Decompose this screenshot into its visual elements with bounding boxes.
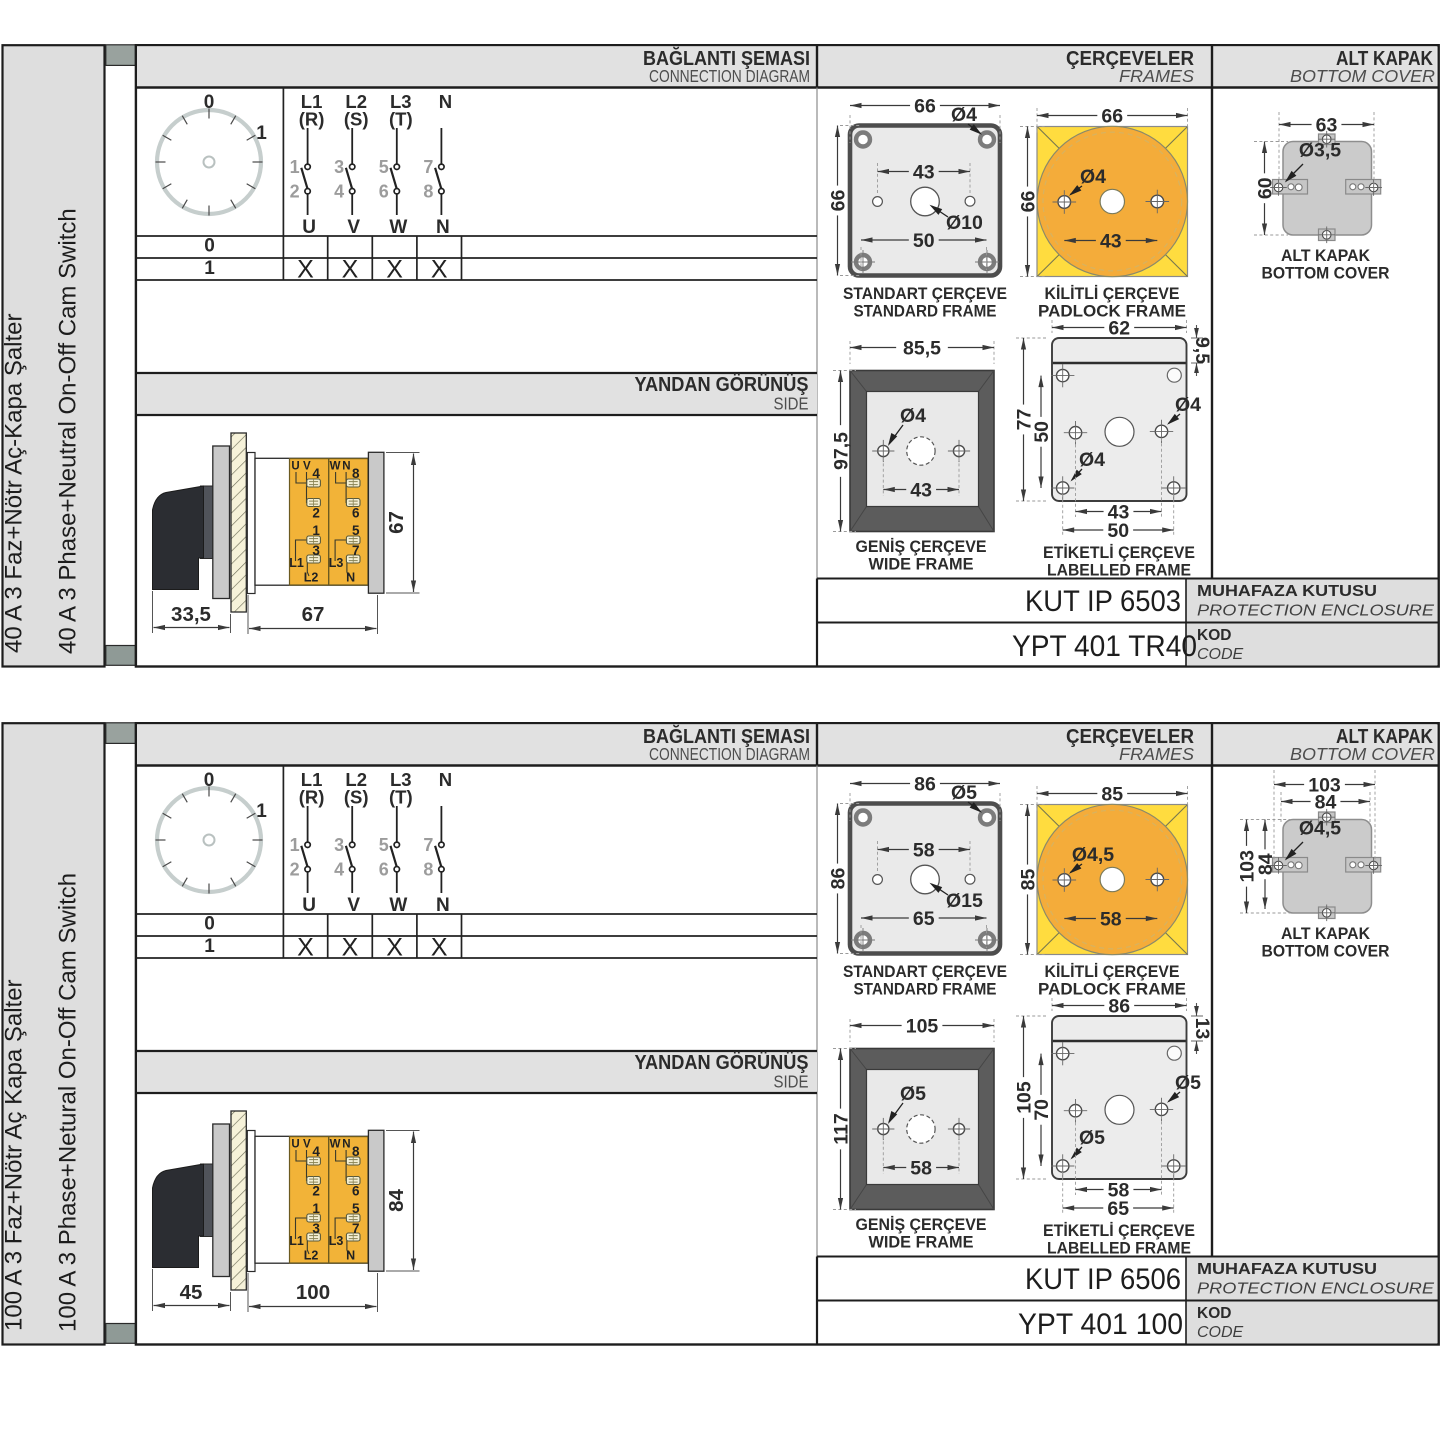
svg-text:N: N — [439, 91, 452, 112]
svg-text:ETİKETLİ ÇERÇEVE: ETİKETLİ ÇERÇEVE — [1043, 543, 1195, 562]
svg-text:N: N — [342, 461, 350, 473]
svg-text:W: W — [389, 895, 407, 916]
svg-text:86: 86 — [1108, 996, 1130, 1018]
svg-text:2: 2 — [290, 182, 300, 202]
svg-text:5: 5 — [379, 835, 389, 855]
svg-text:V: V — [347, 217, 360, 238]
svg-text:65: 65 — [913, 908, 935, 930]
svg-text:N: N — [436, 217, 450, 238]
svg-text:X: X — [431, 934, 448, 962]
svg-text:100: 100 — [296, 1281, 330, 1304]
svg-text:5: 5 — [352, 1201, 360, 1216]
svg-text:Ø4: Ø4 — [1175, 394, 1201, 416]
svg-text:CONNECTION DIAGRAM: CONNECTION DIAGRAM — [649, 744, 810, 764]
svg-text:STANDART ÇERÇEVE: STANDART ÇERÇEVE — [843, 284, 1007, 303]
svg-text:N: N — [439, 769, 452, 790]
svg-text:5: 5 — [352, 523, 360, 538]
svg-text:X: X — [386, 256, 403, 284]
svg-text:7: 7 — [352, 543, 360, 558]
svg-text:KUT IP 6503: KUT IP 6503 — [1025, 585, 1181, 618]
svg-text:W: W — [330, 461, 341, 473]
svg-text:8: 8 — [423, 182, 433, 202]
svg-text:Ø4: Ø4 — [951, 104, 977, 126]
svg-text:N: N — [436, 895, 450, 916]
svg-text:85,5: 85,5 — [903, 338, 941, 360]
svg-text:0: 0 — [204, 914, 215, 935]
svg-text:43: 43 — [1100, 231, 1122, 253]
svg-text:6: 6 — [352, 506, 360, 521]
svg-text:U: U — [291, 1139, 299, 1151]
svg-text:62: 62 — [1108, 318, 1130, 340]
svg-text:N: N — [342, 1139, 350, 1151]
svg-text:Ø3,5: Ø3,5 — [1299, 140, 1341, 162]
svg-text:SIDE: SIDE — [774, 394, 809, 414]
svg-text:BOTTOM COVER: BOTTOM COVER — [1290, 744, 1435, 764]
svg-text:FRAMES: FRAMES — [1119, 66, 1194, 86]
svg-text:0: 0 — [204, 236, 215, 257]
svg-text:W: W — [330, 1139, 341, 1151]
svg-text:66: 66 — [1101, 106, 1123, 128]
svg-text:X: X — [297, 934, 314, 962]
svg-text:66: 66 — [1018, 191, 1040, 213]
svg-text:STANDART ÇERÇEVE: STANDART ÇERÇEVE — [843, 962, 1007, 981]
svg-text:33,5: 33,5 — [171, 603, 211, 626]
svg-text:KİLİTLİ ÇERÇEVE: KİLİTLİ ÇERÇEVE — [1045, 962, 1180, 981]
svg-text:40 A 3 Faz+Nötr Aç-Kapa Şalter: 40 A 3 Faz+Nötr Aç-Kapa Şalter — [1, 313, 28, 653]
svg-text:85: 85 — [1101, 784, 1123, 806]
svg-text:(T): (T) — [389, 109, 413, 130]
svg-text:W: W — [389, 217, 407, 238]
svg-text:(R): (R) — [299, 109, 325, 130]
svg-text:L1: L1 — [289, 1234, 304, 1248]
svg-text:8: 8 — [423, 860, 433, 880]
svg-text:66: 66 — [914, 96, 936, 118]
svg-text:YPT 401 100: YPT 401 100 — [1018, 1308, 1183, 1341]
svg-text:N: N — [346, 1249, 355, 1263]
svg-text:N: N — [346, 571, 355, 585]
svg-text:66: 66 — [828, 190, 850, 212]
svg-text:X: X — [386, 934, 403, 962]
svg-text:100 A 3 Phase+Netural On-Off C: 100 A 3 Phase+Netural On-Off Cam Switch — [55, 873, 82, 1332]
svg-text:Ø5: Ø5 — [900, 1083, 926, 1105]
svg-text:58: 58 — [913, 840, 935, 862]
svg-text:2: 2 — [312, 506, 320, 521]
svg-text:FRAMES: FRAMES — [1119, 744, 1194, 764]
svg-text:4: 4 — [312, 466, 320, 481]
svg-text:85: 85 — [1018, 869, 1040, 891]
svg-text:PROTECTION ENCLOSURE: PROTECTION ENCLOSURE — [1197, 603, 1434, 620]
svg-text:105: 105 — [906, 1016, 939, 1038]
svg-text:STANDARD FRAME: STANDARD FRAME — [854, 302, 997, 321]
svg-text:67: 67 — [302, 603, 325, 626]
svg-text:L1: L1 — [289, 556, 304, 570]
svg-text:58: 58 — [1100, 909, 1122, 931]
svg-text:Ø10: Ø10 — [946, 212, 983, 234]
svg-text:SIDE: SIDE — [774, 1072, 809, 1092]
svg-text:KOD: KOD — [1197, 627, 1231, 644]
svg-text:V: V — [347, 895, 360, 916]
svg-text:5: 5 — [379, 157, 389, 177]
svg-text:6: 6 — [379, 182, 389, 202]
svg-text:63: 63 — [1316, 115, 1338, 137]
svg-text:CODE: CODE — [1197, 646, 1244, 663]
svg-text:7: 7 — [352, 1221, 360, 1236]
svg-text:X: X — [431, 256, 448, 284]
svg-text:2: 2 — [290, 860, 300, 880]
svg-text:Ø4,5: Ø4,5 — [1299, 818, 1341, 840]
svg-text:3: 3 — [312, 1221, 320, 1236]
svg-text:GENİŞ ÇERÇEVE: GENİŞ ÇERÇEVE — [856, 537, 987, 556]
svg-text:1: 1 — [256, 123, 267, 144]
svg-text:PROTECTION ENCLOSURE: PROTECTION ENCLOSURE — [1197, 1281, 1434, 1298]
svg-text:8: 8 — [352, 466, 360, 481]
svg-text:STANDARD FRAME: STANDARD FRAME — [854, 980, 997, 999]
svg-text:1: 1 — [204, 258, 215, 279]
svg-text:Ø5: Ø5 — [1175, 1072, 1201, 1094]
svg-text:CODE: CODE — [1197, 1324, 1244, 1341]
svg-text:KİLİTLİ ÇERÇEVE: KİLİTLİ ÇERÇEVE — [1045, 284, 1180, 303]
svg-text:X: X — [342, 934, 359, 962]
svg-text:50: 50 — [913, 230, 935, 252]
svg-text:V: V — [303, 461, 311, 473]
svg-text:4: 4 — [334, 182, 344, 202]
svg-text:Ø15: Ø15 — [946, 890, 983, 912]
svg-text:X: X — [342, 256, 359, 284]
svg-text:Ø4,5: Ø4,5 — [1072, 844, 1114, 866]
svg-text:6: 6 — [379, 860, 389, 880]
svg-text:CONNECTION DIAGRAM: CONNECTION DIAGRAM — [649, 66, 810, 86]
svg-text:MUHAFAZA KUTUSU: MUHAFAZA KUTUSU — [1197, 1261, 1377, 1278]
svg-text:Ø4: Ø4 — [1080, 166, 1106, 188]
svg-text:Ø5: Ø5 — [1079, 1127, 1105, 1149]
svg-text:86: 86 — [914, 774, 936, 796]
svg-text:3: 3 — [312, 543, 320, 558]
svg-text:BOTTOM COVER: BOTTOM COVER — [1262, 264, 1390, 283]
svg-text:100 A 3 Faz+Nötr Aç Kapa Şalte: 100 A 3 Faz+Nötr Aç Kapa Şalter — [1, 979, 28, 1331]
svg-text:U: U — [302, 895, 316, 916]
svg-text:Ø4: Ø4 — [900, 405, 926, 427]
svg-text:3: 3 — [334, 835, 344, 855]
svg-text:(T): (T) — [389, 787, 413, 808]
svg-text:50: 50 — [1107, 520, 1129, 542]
svg-text:43: 43 — [913, 162, 935, 184]
svg-text:9,5: 9,5 — [1191, 337, 1213, 364]
svg-text:2: 2 — [312, 1184, 320, 1199]
svg-text:GENİŞ ÇERÇEVE: GENİŞ ÇERÇEVE — [856, 1215, 987, 1234]
svg-text:BOTTOM COVER: BOTTOM COVER — [1262, 942, 1390, 961]
svg-text:ALT KAPAK: ALT KAPAK — [1281, 924, 1371, 943]
svg-text:6: 6 — [352, 1184, 360, 1199]
svg-text:WIDE FRAME: WIDE FRAME — [869, 1233, 974, 1252]
svg-text:1: 1 — [312, 523, 320, 538]
svg-text:YPT 401 TR40: YPT 401 TR40 — [1012, 630, 1197, 663]
svg-text:U: U — [291, 461, 299, 473]
svg-text:L2: L2 — [304, 1249, 319, 1263]
svg-text:L2: L2 — [304, 571, 319, 585]
svg-text:(R): (R) — [299, 787, 325, 808]
svg-text:60: 60 — [1255, 177, 1277, 199]
svg-text:KOD: KOD — [1197, 1305, 1231, 1322]
svg-text:7: 7 — [423, 157, 433, 177]
svg-text:84: 84 — [1255, 853, 1277, 875]
svg-text:LABELLED FRAME: LABELLED FRAME — [1047, 1239, 1191, 1258]
svg-text:(S): (S) — [344, 787, 369, 808]
svg-text:BOTTOM COVER: BOTTOM COVER — [1290, 66, 1435, 86]
svg-text:LABELLED FRAME: LABELLED FRAME — [1047, 561, 1191, 580]
svg-text:50: 50 — [1031, 421, 1053, 443]
svg-text:40 A 3 Phase+Neutral On-Off Ca: 40 A 3 Phase+Neutral On-Off Cam Switch — [55, 208, 82, 654]
svg-text:L3: L3 — [329, 556, 344, 570]
svg-text:58: 58 — [910, 1158, 932, 1180]
svg-text:(S): (S) — [344, 109, 369, 130]
svg-text:8: 8 — [352, 1144, 360, 1159]
svg-text:MUHAFAZA KUTUSU: MUHAFAZA KUTUSU — [1197, 583, 1377, 600]
svg-text:1: 1 — [290, 835, 300, 855]
svg-text:ETİKETLİ ÇERÇEVE: ETİKETLİ ÇERÇEVE — [1043, 1221, 1195, 1240]
svg-text:65: 65 — [1107, 1198, 1129, 1220]
svg-text:Ø4: Ø4 — [1079, 449, 1105, 471]
svg-text:70: 70 — [1031, 1099, 1053, 1121]
svg-text:3: 3 — [334, 157, 344, 177]
svg-text:13: 13 — [1191, 1018, 1213, 1040]
svg-text:WIDE FRAME: WIDE FRAME — [869, 555, 974, 574]
svg-text:1: 1 — [290, 157, 300, 177]
svg-text:1: 1 — [256, 801, 267, 822]
svg-text:86: 86 — [828, 868, 850, 890]
svg-text:1: 1 — [312, 1201, 320, 1216]
svg-text:KUT IP 6506: KUT IP 6506 — [1025, 1263, 1181, 1296]
svg-text:V: V — [303, 1139, 311, 1151]
svg-text:0: 0 — [204, 770, 215, 791]
svg-text:45: 45 — [180, 1281, 203, 1304]
svg-text:ALT KAPAK: ALT KAPAK — [1281, 246, 1371, 265]
svg-text:4: 4 — [334, 860, 344, 880]
svg-text:4: 4 — [312, 1144, 320, 1159]
svg-text:1: 1 — [204, 936, 215, 957]
svg-text:67: 67 — [385, 511, 408, 534]
svg-text:7: 7 — [423, 835, 433, 855]
svg-text:U: U — [302, 217, 316, 238]
svg-text:Ø5: Ø5 — [951, 782, 977, 804]
svg-text:0: 0 — [204, 92, 215, 113]
svg-text:117: 117 — [831, 1113, 853, 1144]
svg-text:97,5: 97,5 — [831, 432, 853, 470]
svg-text:L3: L3 — [329, 1234, 344, 1248]
svg-text:84: 84 — [385, 1189, 408, 1212]
svg-text:84: 84 — [1315, 792, 1337, 814]
svg-text:43: 43 — [910, 480, 932, 502]
svg-text:X: X — [297, 256, 314, 284]
